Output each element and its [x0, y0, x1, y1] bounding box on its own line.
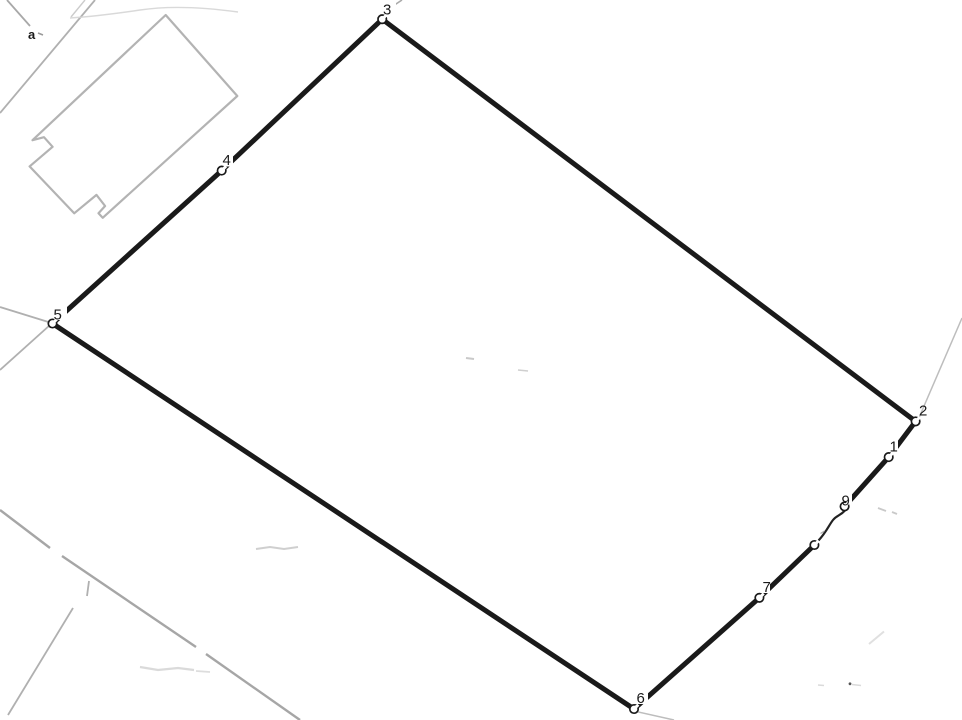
svg-text:4: 4 [223, 152, 231, 169]
svg-text:a: a [28, 27, 36, 42]
svg-text:5: 5 [54, 307, 62, 324]
svg-text:3: 3 [383, 2, 391, 19]
svg-text:2: 2 [919, 403, 927, 420]
svg-text:9: 9 [842, 493, 850, 510]
svg-text:6: 6 [637, 690, 645, 707]
svg-text:7: 7 [763, 579, 771, 596]
svg-text:1: 1 [890, 439, 898, 456]
